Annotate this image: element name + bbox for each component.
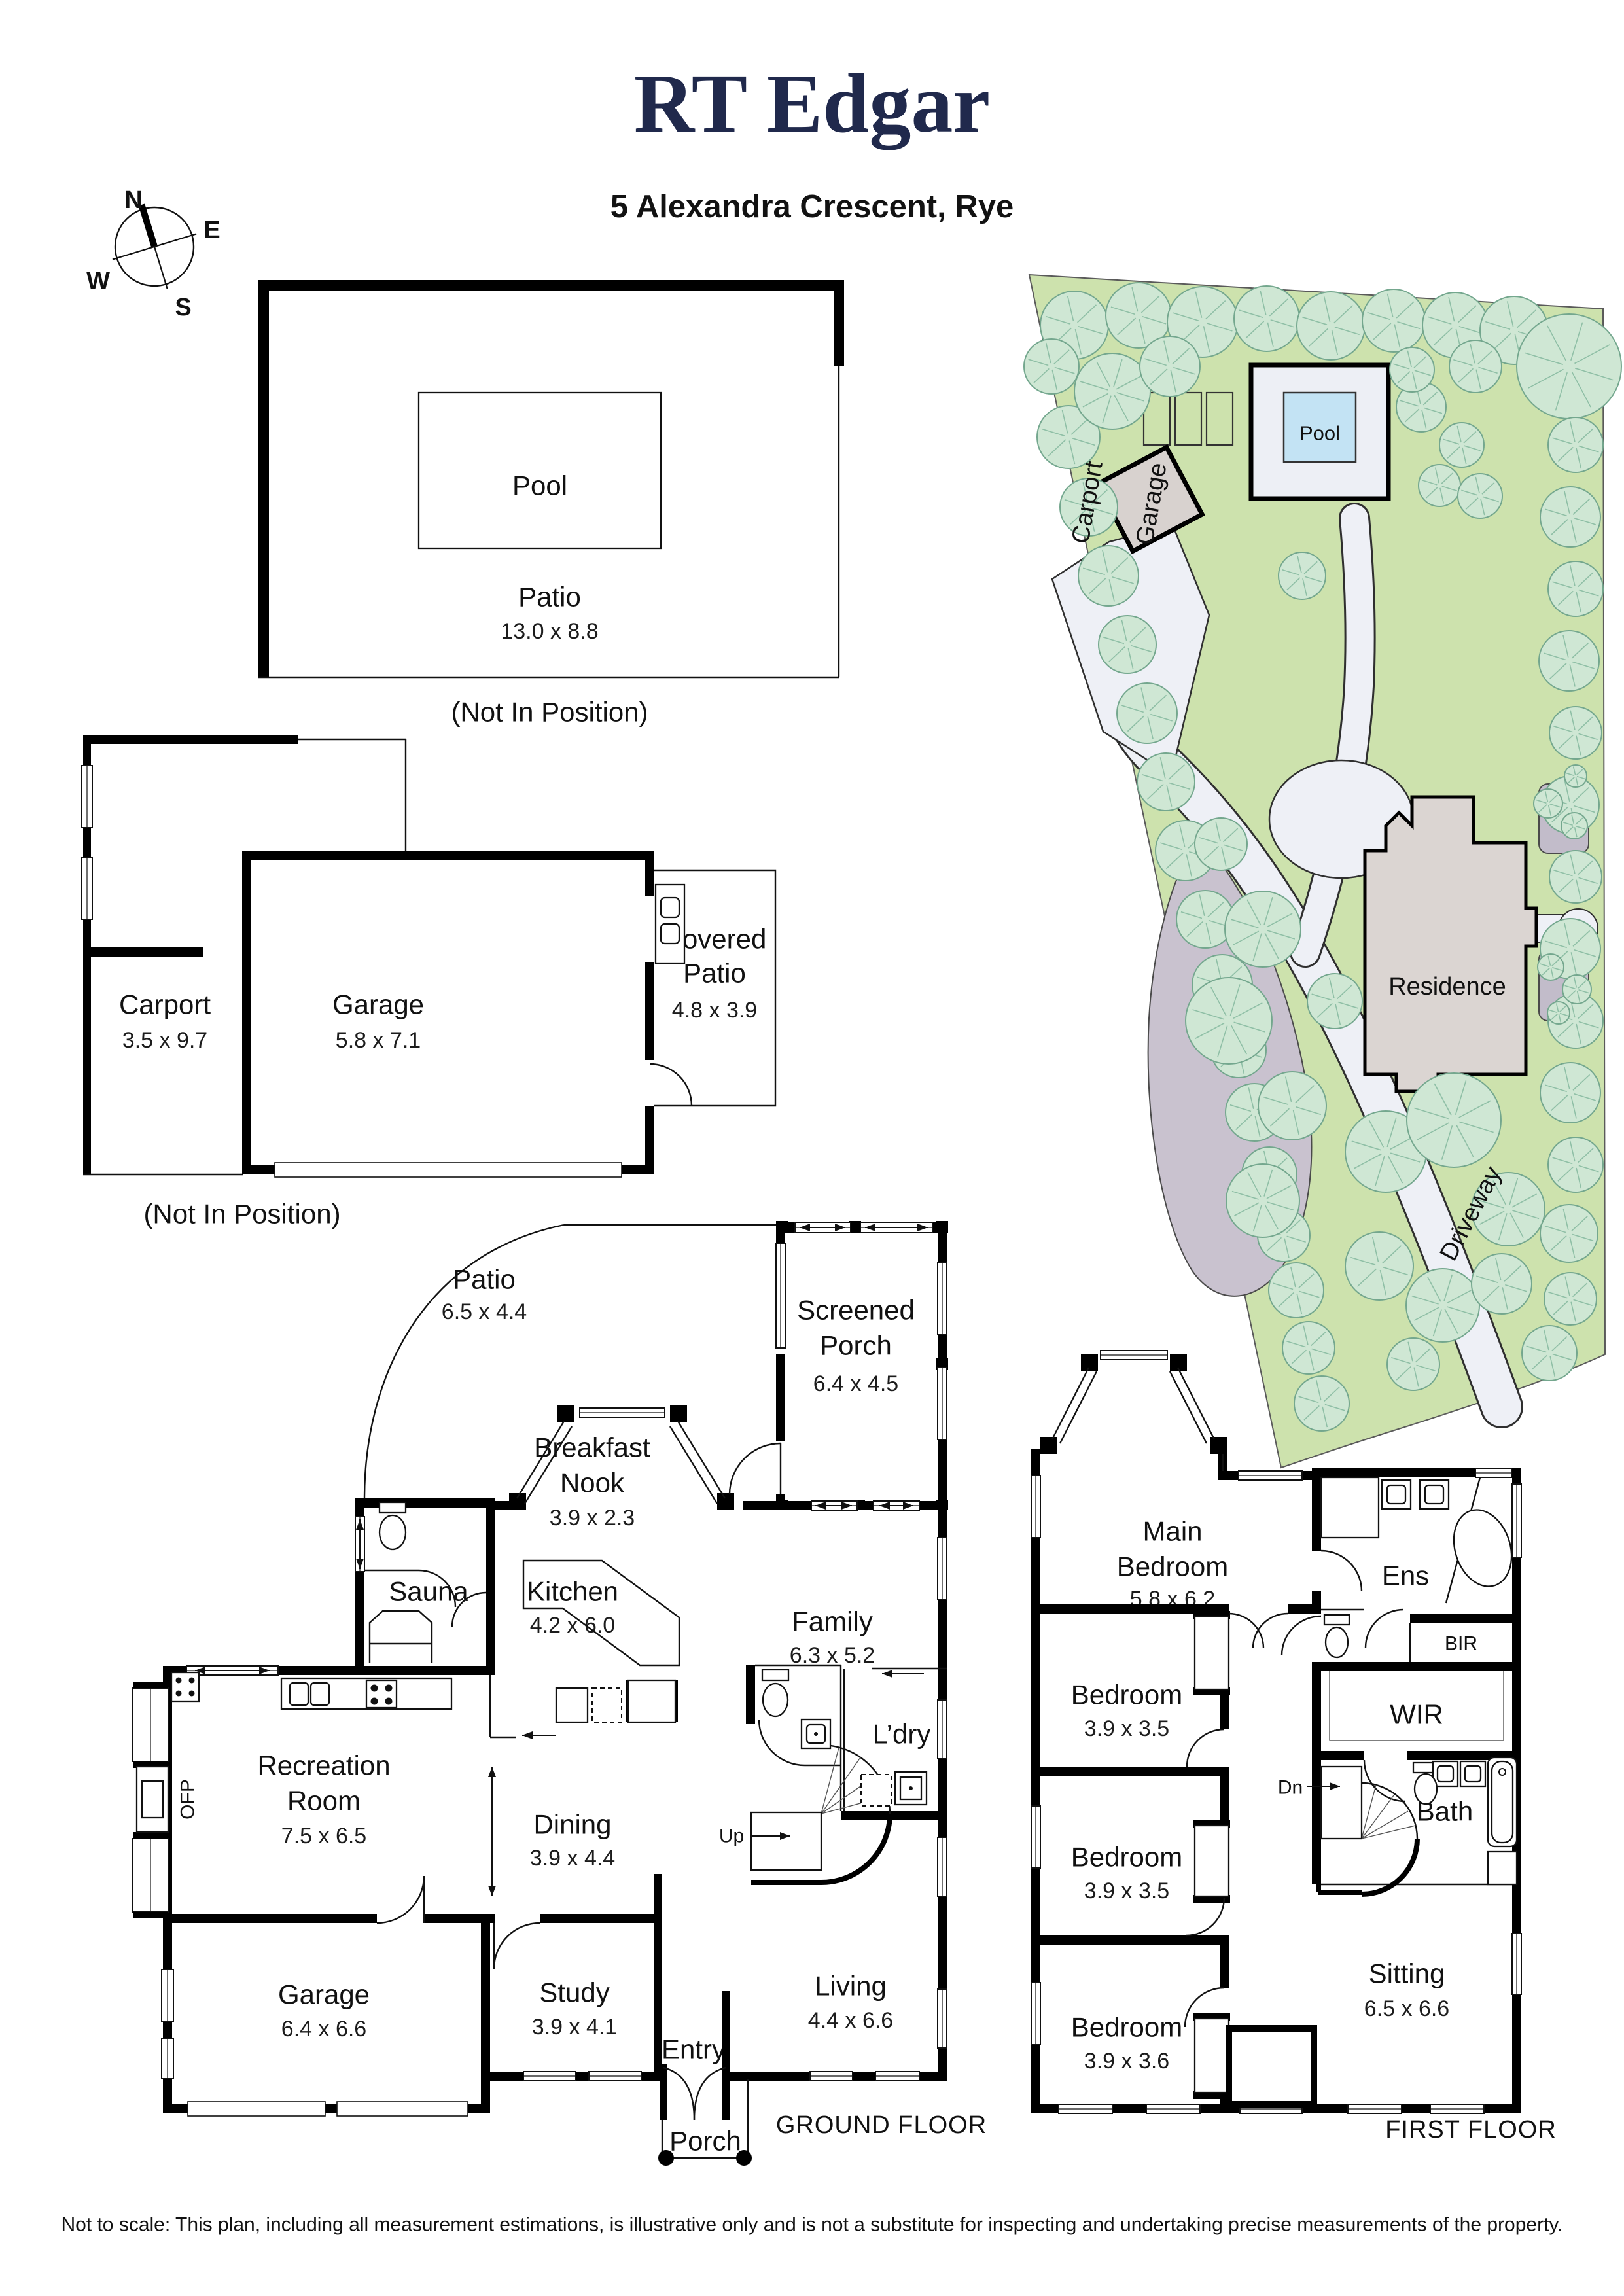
- plan-line: [678, 1421, 725, 1498]
- ff-sitting-dims: 6.5 x 6.6: [1364, 1996, 1449, 2021]
- plan-line: [1282, 1616, 1321, 1655]
- plan-line: [1321, 1551, 1362, 1591]
- tree-icon: [1561, 813, 1587, 839]
- tree-icon: [1258, 1072, 1326, 1140]
- wall: [776, 1354, 785, 1441]
- tree-icon: [1548, 1137, 1603, 1192]
- wall: [645, 851, 654, 896]
- plan-line: [1362, 1811, 1408, 1839]
- fixture: [661, 898, 679, 917]
- wall: [355, 1666, 495, 1675]
- tree-icon: [1540, 487, 1600, 547]
- tree-icon: [1279, 552, 1326, 599]
- plan-line: [377, 1876, 424, 1923]
- porch-column-icon: [736, 2150, 752, 2166]
- plan-line: [1362, 1785, 1376, 1839]
- tree-icon: [1517, 314, 1621, 419]
- wall: [481, 1923, 490, 2113]
- gf-garage-label: Garage: [278, 1979, 370, 2010]
- tree-icon: [1439, 423, 1484, 467]
- plan-line: [663, 2068, 694, 2120]
- fixture: [628, 1680, 675, 1722]
- wall: [1312, 1468, 1321, 1551]
- plan-line: [1362, 1839, 1417, 1894]
- floorplan-canvas: RT Edgar 5 Alexandra Crescent, Rye N E W…: [0, 0, 1624, 2296]
- tree-icon: [1282, 1322, 1335, 1374]
- wall: [1410, 1614, 1512, 1623]
- tree-icon: [1544, 1273, 1597, 1325]
- tree-icon: [1078, 546, 1139, 606]
- plan-line: [1364, 1760, 1405, 1801]
- wall: [1081, 1354, 1098, 1371]
- tree-icon: [1540, 1205, 1598, 1262]
- fixture: [366, 1680, 397, 1708]
- tree-icon: [1226, 1164, 1299, 1237]
- tree-icon: [1548, 1137, 1603, 1192]
- compass-icon: N E W S: [86, 186, 221, 321]
- arrow-icon: [488, 1767, 496, 1777]
- wall: [654, 1874, 662, 2072]
- wall: [670, 1405, 687, 1422]
- tree-icon: [1538, 954, 1564, 980]
- gf-ofp-label: OFP: [177, 1779, 199, 1820]
- tree-icon: [1099, 616, 1156, 673]
- plan-line: [821, 1814, 890, 1882]
- gf-patio-dims: 6.5 x 4.4: [442, 1299, 527, 1324]
- site-plan: Pool Carport Garage Residence Driveway: [1024, 275, 1621, 1468]
- plan-line: [1178, 1368, 1214, 1439]
- wall: [1288, 1604, 1315, 1614]
- wall: [83, 735, 298, 744]
- gf-kitchen-dims: 4.2 x 6.0: [530, 1613, 615, 1638]
- fixture: [861, 1775, 891, 1806]
- tree-icon: [1522, 1326, 1577, 1381]
- tree-icon: [1540, 1205, 1598, 1262]
- fixture: [1195, 1826, 1229, 1896]
- gf-study-dims: 3.9 x 4.1: [532, 2015, 617, 2040]
- ff-bedroom-a-label: Bedroom: [1071, 1680, 1182, 1710]
- fixture: [1321, 1767, 1362, 1839]
- pool-patio-plan: Pool Patio 13.0 x 8.8 (Not In Position): [258, 280, 844, 728]
- tree-icon: [1140, 336, 1200, 397]
- fixture: [311, 1683, 329, 1705]
- wall: [83, 947, 203, 957]
- gf-dining-dims: 3.9 x 4.4: [530, 1846, 615, 1871]
- tree-icon: [1548, 561, 1603, 616]
- ff-main-bedroom-label-1: Main: [1142, 1516, 1202, 1547]
- plan-line: [1060, 1371, 1097, 1443]
- gf-study-label: Study: [539, 1977, 609, 2008]
- wall: [1312, 1751, 1364, 1760]
- fixture: [592, 1688, 622, 1722]
- wall: [936, 1221, 948, 1233]
- tree-icon: [1078, 546, 1139, 606]
- fixture: [1195, 2019, 1229, 2093]
- tree-icon: [1297, 292, 1365, 360]
- first-floor-plan: Main Bedroom 5.8 x 6.2 Ens BIR WIR Bath …: [1031, 1351, 1557, 2144]
- brand-title: RT Edgar: [634, 57, 990, 150]
- wall: [834, 280, 844, 366]
- gf-dining-label: Dining: [533, 1809, 611, 1840]
- tree-icon: [1137, 753, 1195, 811]
- tree-icon: [1074, 353, 1150, 429]
- cooktop-icon: [385, 1698, 393, 1705]
- plan-line: [821, 1748, 839, 1814]
- cooktop-icon: [176, 1691, 182, 1697]
- cooktop-icon: [371, 1698, 378, 1705]
- tree-icon: [1548, 417, 1603, 472]
- wall: [1312, 1662, 1321, 1760]
- plan-line: [370, 1611, 432, 1663]
- tree-icon: [1258, 1072, 1326, 1140]
- tree-icon: [1549, 851, 1602, 903]
- ground-floor-plan: Patio 6.5 x 4.4 Screened Porch 6.4 x 4.5…: [133, 1221, 987, 2166]
- tree-icon: [1472, 1254, 1532, 1314]
- tree-icon: [1458, 474, 1502, 518]
- tree-icon: [1345, 1232, 1413, 1300]
- tree-icon: [1234, 286, 1299, 351]
- gf-porch-label: Porch: [669, 2126, 741, 2157]
- wall: [133, 1682, 168, 1688]
- plan-line: [670, 1426, 717, 1504]
- fixture: [1387, 1485, 1405, 1504]
- fixture: [751, 1812, 821, 1870]
- gf-kitchen-label: Kitchen: [527, 1576, 618, 1607]
- gf-breakfast-nook-label-1: Breakfast: [534, 1432, 650, 1463]
- cooktop-icon: [371, 1685, 378, 1692]
- tree-icon: [1540, 487, 1600, 547]
- covered-patio-dims: 4.8 x 3.9: [672, 998, 757, 1023]
- tree-icon: [1548, 417, 1603, 472]
- toilet-icon: [380, 1515, 406, 1549]
- tree-icon: [1390, 347, 1434, 392]
- wall: [424, 1914, 490, 1923]
- covered-patio-label-2: Patio: [683, 958, 746, 989]
- plan-line: [650, 1064, 692, 1106]
- ff-bedroom-a-dims: 3.9 x 3.5: [1084, 1716, 1169, 1741]
- fixture: [1324, 1615, 1349, 1625]
- garage-door-icon: [275, 1163, 622, 1177]
- gf-breakfast-nook-label-2: Nook: [560, 1468, 625, 1498]
- tree-icon: [1561, 813, 1587, 839]
- cooktop-icon: [189, 1691, 195, 1697]
- ff-bedroom-c-dims: 3.9 x 3.6: [1084, 2049, 1169, 2074]
- tree-icon: [1387, 1338, 1439, 1390]
- plan-line: [1187, 1729, 1224, 1767]
- property-address: 5 Alexandra Crescent, Rye: [610, 189, 1014, 224]
- wall: [490, 1914, 495, 1923]
- wall: [1312, 1591, 1321, 1614]
- wall: [355, 1498, 495, 1508]
- tree-icon: [1282, 1322, 1335, 1374]
- tree-icon: [1099, 616, 1156, 673]
- ob-carport-dims: 3.5 x 9.7: [122, 1028, 207, 1053]
- disclaimer-text: Not to scale: This plan, including all m…: [61, 2214, 1562, 2236]
- header: RT Edgar 5 Alexandra Crescent, Rye: [610, 57, 1014, 224]
- site-residence-label: Residence: [1388, 973, 1506, 1000]
- tree-icon: [1540, 1063, 1600, 1123]
- wall: [540, 1914, 662, 1923]
- arrow-icon: [522, 1731, 533, 1739]
- ff-main-bedroom-label-2: Bedroom: [1117, 1551, 1228, 1582]
- cooktop-icon: [189, 1678, 195, 1684]
- fixture: [1321, 1477, 1379, 1538]
- site-pool-label: Pool: [1299, 422, 1340, 445]
- tree-icon: [1024, 339, 1079, 394]
- plan-line: [494, 1923, 540, 1969]
- ff-bedroom-b-dims: 3.9 x 3.5: [1084, 1879, 1169, 1903]
- fixture: [171, 1672, 199, 1701]
- garage-door-icon: [337, 2102, 468, 2116]
- gf-breakfast-nook-dims: 3.9 x 2.3: [550, 1506, 635, 1530]
- wall: [743, 1501, 779, 1510]
- tree-icon: [1140, 336, 1200, 397]
- plan-line: [759, 1720, 805, 1765]
- not-in-position-note: (Not In Position): [451, 697, 648, 728]
- fixture: [1492, 1761, 1513, 1843]
- outbuildings-plan: Carport 3.5 x 9.7 Garage 5.8 x 7.1 Cover…: [82, 735, 775, 1229]
- wall: [486, 1498, 495, 1675]
- spa-bath-icon: [1445, 1502, 1521, 1594]
- tree-icon: [1407, 1073, 1501, 1167]
- wall: [1031, 1767, 1229, 1776]
- tree-icon: [1549, 707, 1602, 759]
- trough-icon: [909, 1786, 913, 1790]
- tree-icon: [1176, 891, 1234, 948]
- ff-sitting-label: Sitting: [1369, 1958, 1445, 1989]
- tree-icon: [1548, 561, 1603, 616]
- plan-line: [1362, 1783, 1417, 1839]
- tree-icon: [1439, 423, 1484, 467]
- pool-label: Pool: [512, 470, 567, 501]
- tree-icon: [1362, 289, 1425, 352]
- ob-garage-label: Garage: [332, 989, 424, 1020]
- ff-bir-label-ens: BIR: [1445, 1633, 1477, 1655]
- wall: [258, 280, 269, 677]
- tree-icon: [1449, 340, 1502, 393]
- wall: [722, 2064, 730, 2120]
- tree-icon: [1307, 974, 1362, 1029]
- toilet-icon: [1415, 1774, 1437, 1804]
- wall: [1040, 1437, 1057, 1454]
- fixture: [142, 1781, 163, 1818]
- tree-icon: [1539, 631, 1599, 691]
- wall: [133, 1912, 168, 1918]
- tree-icon: [1564, 765, 1587, 787]
- tree-icon: [1538, 954, 1564, 980]
- wall: [557, 1405, 574, 1422]
- arrow-icon: [882, 1670, 892, 1678]
- compass-west: W: [86, 268, 110, 295]
- gf-recreation-label-1: Recreation: [257, 1750, 390, 1781]
- fixture: [1465, 1766, 1481, 1782]
- toilet-icon: [1326, 1627, 1348, 1657]
- tree-icon: [1449, 340, 1502, 393]
- plan-line: [1253, 1614, 1288, 1648]
- wall: [242, 851, 251, 1174]
- tree-icon: [1406, 1269, 1479, 1342]
- open-to-below-box: [1229, 2028, 1314, 2104]
- cooktop-icon: [176, 1678, 182, 1684]
- gf-family-label: Family: [792, 1606, 873, 1637]
- tree-icon: [1540, 1063, 1600, 1123]
- plan-line: [694, 2068, 726, 2120]
- tree-icon: [1186, 978, 1272, 1064]
- gf-sauna-label: Sauna: [389, 1576, 468, 1607]
- site-residence: [1365, 797, 1536, 1091]
- wall: [645, 1106, 654, 1174]
- wall: [645, 962, 654, 1060]
- wall: [660, 2064, 667, 2120]
- tree-icon: [1297, 292, 1365, 360]
- gf-family-dims: 6.3 x 5.2: [790, 1643, 875, 1668]
- tree-icon: [1419, 465, 1460, 506]
- tree-icon: [1024, 339, 1079, 394]
- tree-icon: [1539, 631, 1599, 691]
- fixture: [290, 1683, 308, 1705]
- fixture: [1425, 1485, 1443, 1504]
- first-floor-title: FIRST FLOOR: [1385, 2116, 1557, 2144]
- fixture: [380, 1502, 406, 1513]
- toilet-icon: [763, 1684, 788, 1716]
- tree-icon: [1074, 353, 1150, 429]
- wall: [746, 1665, 755, 1724]
- basin-icon: [814, 1732, 818, 1736]
- gf-entry-label: Entry: [662, 2034, 726, 2065]
- wall: [133, 1832, 168, 1839]
- wall: [1220, 1776, 1229, 1824]
- arrow-icon: [488, 1886, 496, 1896]
- tree-icon: [1406, 1269, 1479, 1342]
- fixture: [661, 924, 679, 944]
- tree-icon: [1534, 789, 1562, 818]
- ff-bedroom-b-label: Bedroom: [1071, 1842, 1182, 1873]
- tree-icon: [1534, 789, 1562, 818]
- plan-line: [1366, 1610, 1403, 1648]
- tree-icon: [1117, 683, 1177, 743]
- fixture: [762, 1670, 788, 1680]
- fixture: [1438, 1766, 1453, 1782]
- tree-icon: [1407, 1073, 1501, 1167]
- wall: [278, 1666, 355, 1675]
- patio-label: Patio: [518, 582, 581, 612]
- wall: [1210, 1437, 1227, 1454]
- gf-living-dims: 4.4 x 6.6: [808, 2008, 893, 2033]
- gf-screened-porch-label-2: Porch: [820, 1330, 892, 1361]
- compass-east: E: [203, 217, 220, 244]
- tree-icon: [1117, 683, 1177, 743]
- wall: [938, 1233, 947, 2081]
- tree-icon: [1225, 891, 1301, 967]
- tree-icon: [1234, 286, 1299, 351]
- ob-garage-dims: 5.8 x 7.1: [336, 1028, 421, 1053]
- wall: [242, 851, 654, 860]
- tree-icon: [1562, 975, 1591, 1004]
- compass-south: S: [175, 294, 191, 321]
- tree-icon: [1419, 465, 1460, 506]
- garage-door-icon: [188, 2102, 325, 2116]
- tree-icon: [1269, 1263, 1324, 1318]
- gf-garage-dims: 6.4 x 6.6: [281, 2017, 366, 2041]
- plan-line: [1052, 1368, 1089, 1439]
- wall: [1220, 1691, 1229, 1729]
- patio-dims: 13.0 x 8.8: [501, 619, 598, 644]
- wall: [1321, 1662, 1410, 1671]
- tree-icon: [1225, 891, 1301, 967]
- tree-icon: [1279, 552, 1326, 599]
- plan-line: [730, 1443, 781, 1494]
- wall: [722, 1991, 730, 2072]
- fixture: [1488, 1852, 1517, 1884]
- tree-icon: [1547, 1002, 1570, 1024]
- tree-icon: [1294, 1376, 1349, 1431]
- tree-icon: [1564, 765, 1587, 787]
- tree-icon: [1226, 1164, 1299, 1237]
- fixture: [1195, 1616, 1229, 1689]
- ff-stairs-dn-label: Dn: [1278, 1777, 1303, 1799]
- tree-icon: [1294, 1376, 1349, 1431]
- ground-floor-title: GROUND FLOOR: [776, 2111, 987, 2139]
- tree-icon: [1544, 1273, 1597, 1325]
- ff-ensuite-label: Ens: [1382, 1561, 1429, 1591]
- wall: [258, 280, 844, 291]
- wall: [1220, 1945, 1229, 1988]
- wall: [167, 1914, 377, 1923]
- tree-icon: [1390, 347, 1434, 392]
- tree-icon: [1195, 818, 1247, 870]
- ff-wir-label: WIR: [1390, 1699, 1443, 1730]
- gf-recreation-label-2: Room: [287, 1786, 361, 1816]
- gf-recreation-dims: 7.5 x 6.5: [281, 1824, 366, 1848]
- plan-line: [1186, 1898, 1224, 1935]
- tree-icon: [1307, 974, 1362, 1029]
- porch-column-icon: [658, 2150, 674, 2166]
- tree-icon: [1269, 1263, 1324, 1318]
- gf-patio-label: Patio: [453, 1264, 516, 1295]
- gf-living-label: Living: [815, 1971, 887, 2002]
- gf-stairs-up-label: Up: [719, 1826, 744, 1847]
- tree-icon: [1186, 978, 1272, 1064]
- gf-screened-porch-label-1: Screened: [797, 1295, 915, 1326]
- wall: [841, 1811, 947, 1820]
- ff-bedroom-c-label: Bedroom: [1071, 2012, 1182, 2043]
- tree-icon: [1562, 975, 1591, 1004]
- plan-line: [1170, 1371, 1207, 1443]
- tree-icon: [1549, 851, 1602, 903]
- cooktop-icon: [385, 1685, 393, 1692]
- fixture: [556, 1688, 588, 1722]
- wall: [1031, 1935, 1229, 1945]
- wall: [1410, 1662, 1512, 1671]
- tree-icon: [1137, 753, 1195, 811]
- tree-icon: [1362, 289, 1425, 352]
- ob-not-in-position-note: (Not In Position): [143, 1199, 340, 1229]
- floorplan-page: RT Edgar 5 Alexandra Crescent, Rye N E W…: [0, 0, 1624, 2296]
- tree-icon: [1549, 707, 1602, 759]
- tree-icon: [1176, 891, 1234, 948]
- tree-icon: [1345, 1232, 1413, 1300]
- gf-screened-porch-dims: 6.4 x 4.5: [813, 1371, 898, 1396]
- tree-icon: [1387, 1338, 1439, 1390]
- tree-icon: [1522, 1326, 1577, 1381]
- tree-icon: [1195, 818, 1247, 870]
- tree-icon: [1547, 1002, 1570, 1024]
- wall: [717, 1493, 734, 1510]
- wall: [509, 1493, 526, 1510]
- ob-carport-label: Carport: [119, 989, 211, 1020]
- tree-icon: [1458, 474, 1502, 518]
- tree-icon: [1472, 1254, 1532, 1314]
